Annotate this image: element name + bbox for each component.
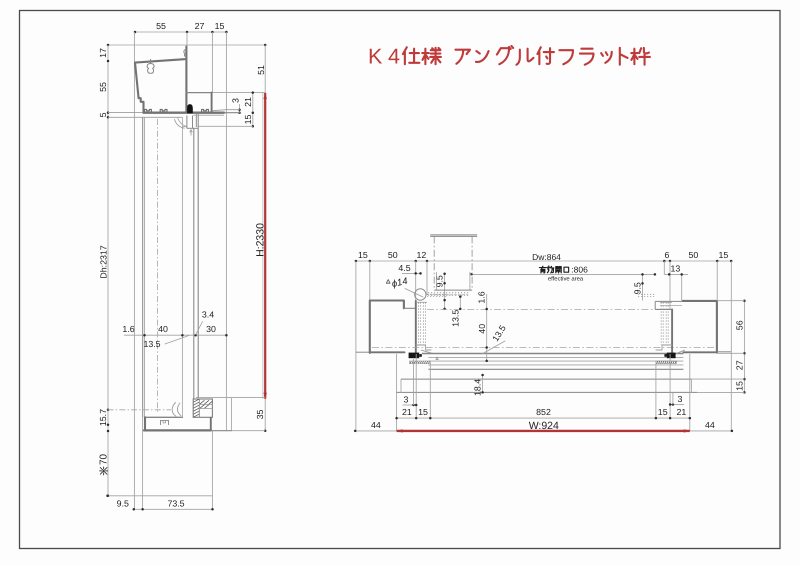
svg-text:4.5: 4.5: [398, 263, 410, 273]
svg-text:40: 40: [477, 324, 487, 334]
svg-text:44: 44: [705, 420, 715, 430]
svg-text:Dh:2317: Dh:2317: [99, 245, 109, 278]
svg-text:35: 35: [255, 410, 265, 420]
svg-text:51: 51: [256, 65, 266, 75]
svg-text:W:924: W:924: [529, 420, 559, 432]
svg-text:6: 6: [664, 250, 669, 260]
svg-text:3: 3: [230, 98, 240, 103]
svg-text:9.5: 9.5: [633, 282, 643, 294]
svg-text:50: 50: [689, 250, 699, 260]
svg-text:3: 3: [404, 394, 409, 404]
svg-text:15.7: 15.7: [98, 409, 108, 426]
svg-text:1.6: 1.6: [122, 324, 134, 334]
svg-text:12: 12: [417, 250, 427, 260]
svg-text:ϕ14: ϕ14: [391, 276, 409, 290]
svg-text:K: K: [368, 45, 383, 69]
svg-text:15: 15: [658, 407, 668, 417]
svg-text:30: 30: [206, 324, 216, 334]
svg-text:15: 15: [418, 407, 428, 417]
svg-text:73.5: 73.5: [167, 499, 184, 509]
svg-text:15: 15: [719, 250, 729, 260]
svg-text:15: 15: [215, 21, 225, 31]
svg-text:4: 4: [388, 45, 400, 69]
svg-text:50: 50: [388, 250, 398, 260]
svg-text:21: 21: [402, 407, 412, 417]
svg-text::806: :806: [571, 265, 588, 275]
svg-text:55: 55: [156, 21, 166, 31]
svg-text:15: 15: [358, 250, 368, 260]
svg-text:effective area: effective area: [548, 275, 584, 282]
svg-text:70: 70: [99, 453, 110, 465]
svg-text:21: 21: [243, 97, 253, 107]
svg-text:15: 15: [243, 115, 253, 125]
svg-text:Dw:864: Dw:864: [532, 252, 561, 262]
svg-text:13.5: 13.5: [143, 339, 160, 349]
svg-text:44: 44: [371, 420, 381, 430]
svg-text:18.4: 18.4: [473, 379, 483, 396]
svg-text:13.5: 13.5: [490, 323, 508, 343]
svg-text:3: 3: [677, 394, 682, 404]
svg-text:13: 13: [671, 263, 681, 273]
svg-text:56: 56: [735, 320, 745, 330]
svg-text:5: 5: [98, 112, 108, 117]
svg-text:21: 21: [677, 407, 687, 417]
svg-text:13.5: 13.5: [450, 310, 460, 327]
svg-text:27: 27: [735, 360, 745, 370]
svg-text:9.5: 9.5: [117, 499, 129, 509]
svg-text:3.4: 3.4: [202, 310, 214, 320]
svg-text:55: 55: [98, 82, 108, 92]
svg-text:1.6: 1.6: [477, 291, 487, 303]
svg-text:H:2330: H:2330: [255, 223, 267, 257]
svg-text:27: 27: [195, 21, 205, 31]
svg-text:17: 17: [98, 48, 108, 58]
svg-text:852: 852: [536, 407, 551, 417]
svg-text:15: 15: [735, 381, 745, 391]
svg-text:40: 40: [158, 324, 168, 334]
